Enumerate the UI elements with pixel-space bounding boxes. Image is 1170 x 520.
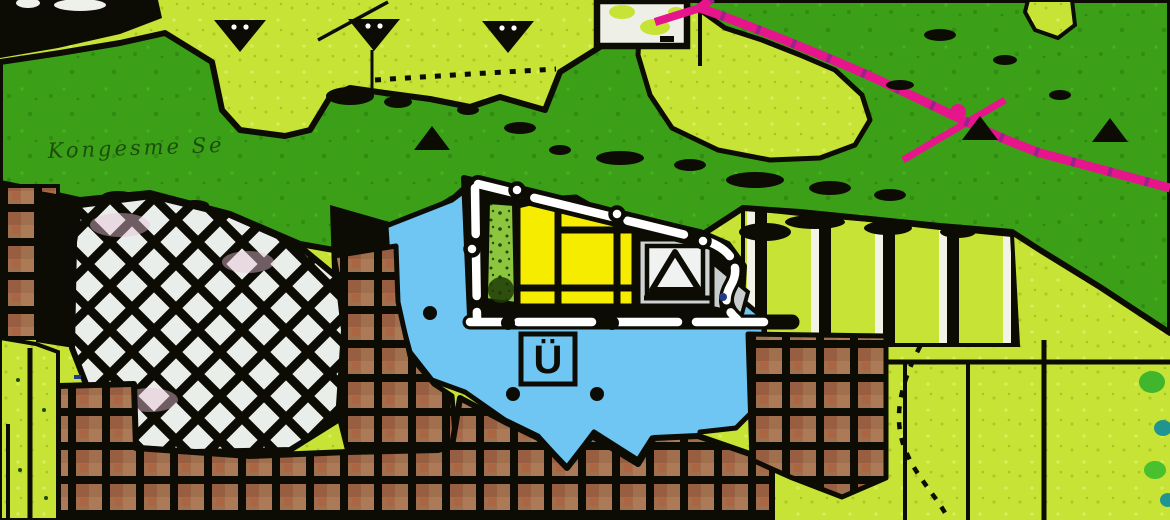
land-use-map[interactable]: Kongesme Se <box>0 0 1170 520</box>
black-fill-column <box>34 190 78 348</box>
open-land-corner <box>0 338 58 520</box>
survey-point <box>74 375 81 379</box>
top-enclosure <box>597 1 687 46</box>
overlay-marker-label: Ü <box>534 337 563 382</box>
overlay-marker: Ü <box>521 334 575 384</box>
map-canvas: Kongesme Se <box>0 0 1170 520</box>
survey-point <box>719 293 727 301</box>
green-strip-blotch <box>488 277 514 303</box>
